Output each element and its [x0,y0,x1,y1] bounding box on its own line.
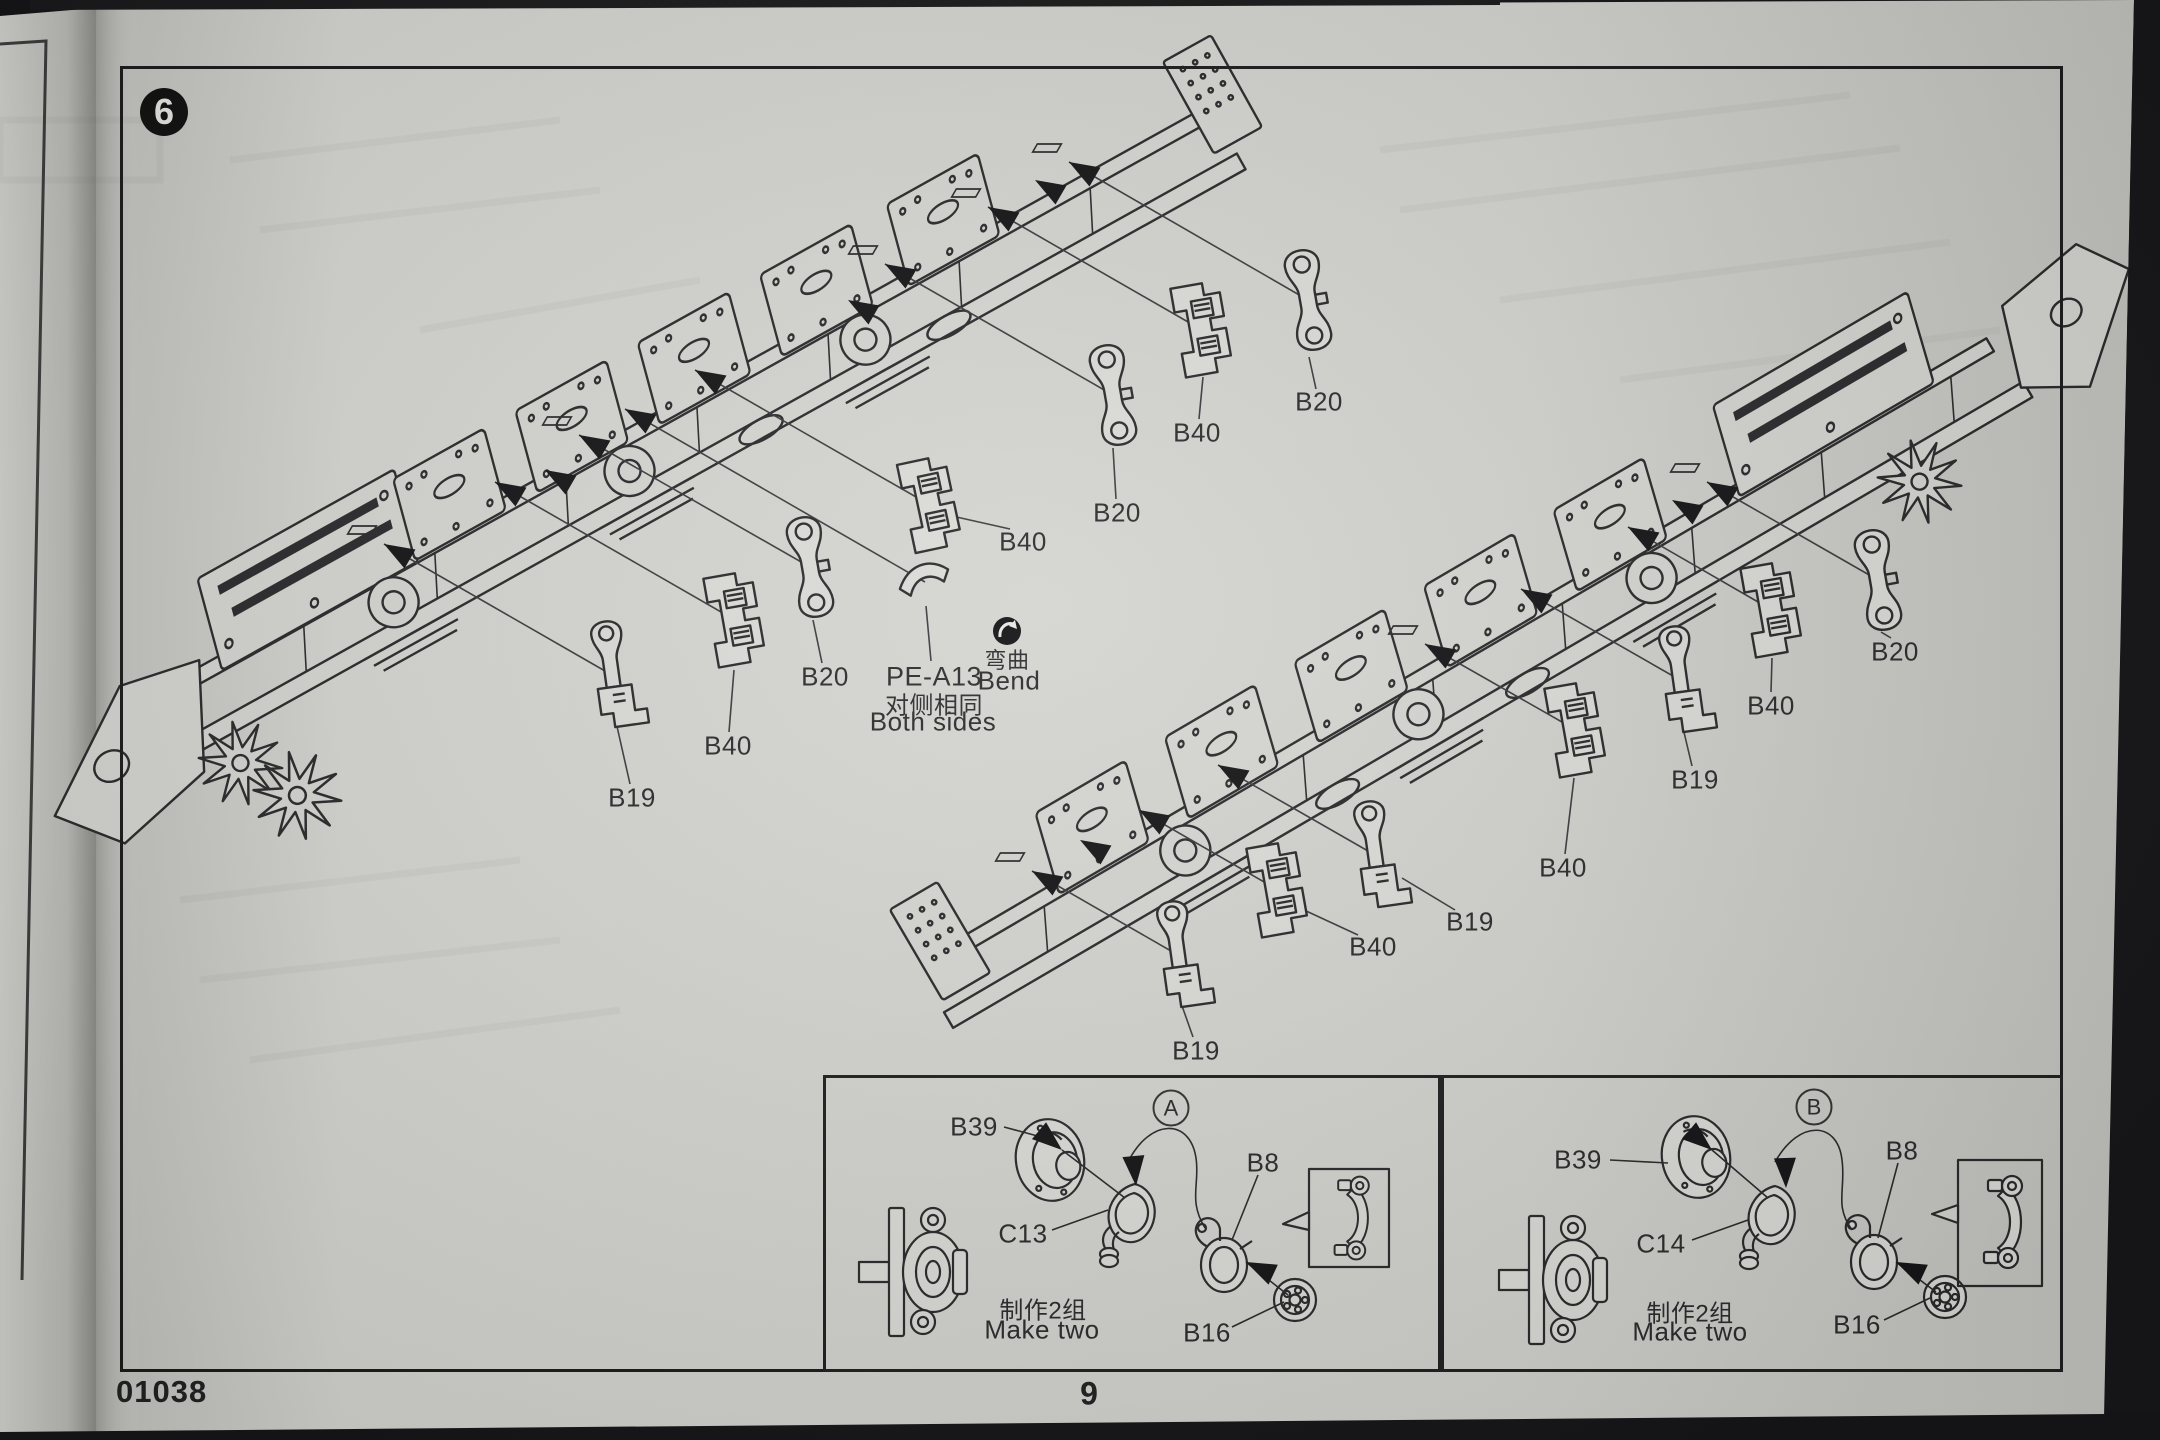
part-label: B40 [999,527,1047,558]
subassembly-box-b [1441,1075,2063,1372]
part-label: B39 [950,1112,998,1143]
part-label: B19 [1446,907,1494,938]
part-label: C13 [998,1219,1047,1250]
part-label: B40 [1747,691,1795,722]
part-label: B19 [608,783,656,814]
page-number: 9 [1080,1376,1098,1413]
inset-a-note-en: Make two [984,1315,1099,1346]
kit-number: 01038 [116,1374,207,1410]
subassembly-box-a [823,1075,1441,1372]
scanned-manual-page: 6 B20B40B20B40B20B40B19B20B40B19B40B19B4… [0,0,2160,1440]
part-label: B20 [1871,637,1919,668]
bend-label-en: Bend [978,666,1041,697]
part-label: B40 [1539,853,1587,884]
part-label: B40 [1349,932,1397,963]
part-label: B16 [1183,1318,1231,1349]
step-number-badge: 6 [140,88,188,136]
part-label: B8 [1886,1136,1919,1167]
inset-a-letter: A [1153,1090,1190,1127]
part-label: B19 [1671,765,1719,796]
part-label: B40 [1173,418,1221,449]
pe-note-en: Both sides [870,707,996,738]
part-label: B40 [704,731,752,762]
part-label: C14 [1636,1229,1685,1260]
inset-b-note-en: Make two [1632,1317,1747,1348]
part-label: B39 [1554,1145,1602,1176]
part-label: B20 [1295,387,1343,418]
previous-page-edge [0,8,96,1436]
part-label: B20 [1093,498,1141,529]
part-label: B19 [1172,1036,1220,1067]
part-label: B8 [1247,1148,1280,1179]
inset-a-letter-text: A [1164,1095,1179,1121]
step-number: 6 [154,91,174,133]
inset-b-letter-text: B [1807,1094,1822,1120]
inset-b-letter: B [1796,1089,1833,1126]
part-label: B20 [801,662,849,693]
part-label: B16 [1833,1310,1881,1341]
